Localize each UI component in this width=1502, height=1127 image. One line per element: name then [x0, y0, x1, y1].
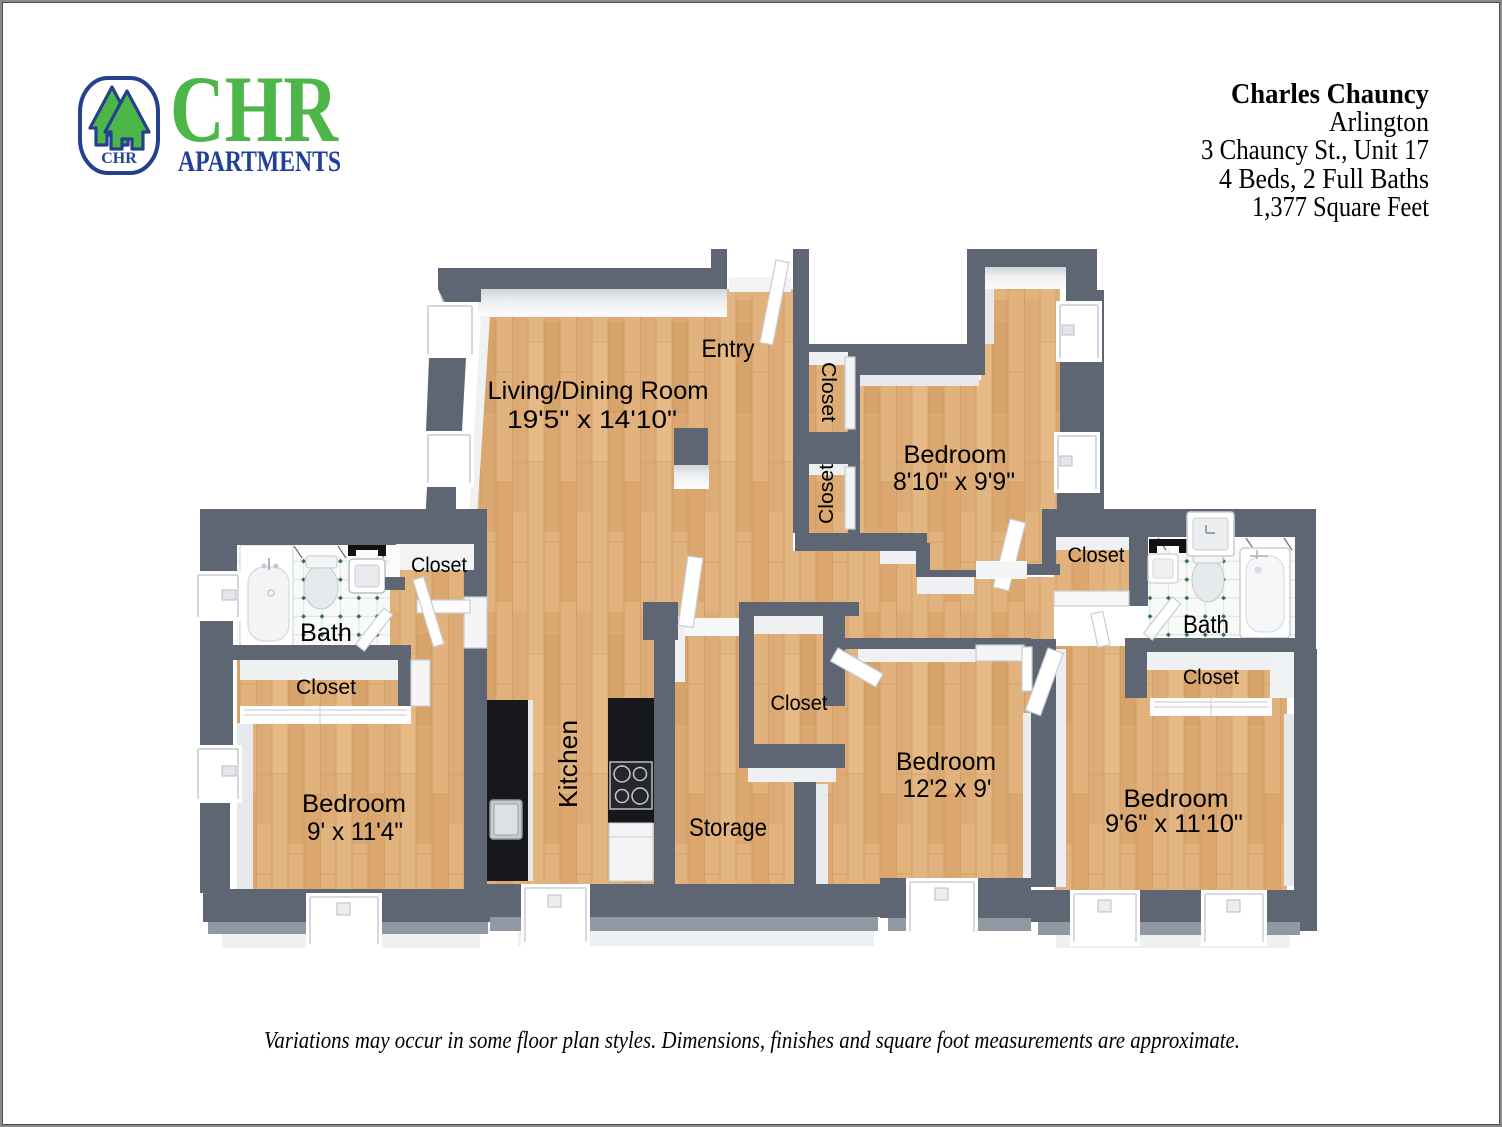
svg-text:Arlington: Arlington — [1329, 107, 1429, 138]
svg-text:Closet: Closet — [1068, 544, 1125, 567]
svg-text:Closet: Closet — [411, 554, 467, 577]
svg-text:Charles Chauncy: Charles Chauncy — [1231, 78, 1429, 110]
svg-text:1,377 Square Feet: 1,377 Square Feet — [1252, 192, 1429, 223]
svg-text:Closet: Closet — [817, 362, 839, 422]
svg-text:Variations may occur in some f: Variations may occur in some floor plan … — [264, 1027, 1240, 1054]
svg-text:Bedroom: Bedroom — [904, 441, 1007, 469]
svg-text:9'6" x 11'10": 9'6" x 11'10" — [1105, 810, 1243, 838]
svg-text:Closet: Closet — [816, 464, 838, 524]
svg-text:Bedroom: Bedroom — [302, 790, 406, 818]
svg-text:9' x 11'4": 9' x 11'4" — [307, 818, 403, 846]
svg-text:CHR: CHR — [101, 150, 137, 167]
svg-text:Living/Dining Room: Living/Dining Room — [488, 377, 709, 405]
svg-text:Closet: Closet — [296, 676, 356, 699]
svg-text:8'10" x 9'9": 8'10" x 9'9" — [893, 468, 1015, 496]
svg-text:APARTMENTS: APARTMENTS — [178, 145, 341, 178]
svg-text:Bedroom: Bedroom — [896, 748, 996, 776]
svg-text:Closet: Closet — [1183, 666, 1239, 689]
svg-text:Bath: Bath — [300, 619, 352, 647]
svg-text:Entry: Entry — [702, 335, 755, 363]
svg-text:4 Beds, 2 Full Baths: 4 Beds, 2 Full Baths — [1219, 164, 1429, 195]
svg-text:Bedroom: Bedroom — [1124, 785, 1229, 813]
svg-text:12'2 x 9': 12'2 x 9' — [903, 775, 992, 803]
svg-text:Storage: Storage — [689, 814, 767, 842]
svg-text:Kitchen: Kitchen — [553, 720, 583, 808]
svg-text:Bath: Bath — [1183, 611, 1229, 639]
svg-text:3 Chauncy St., Unit 17: 3 Chauncy St., Unit 17 — [1201, 135, 1429, 166]
svg-text:Closet: Closet — [771, 692, 828, 715]
svg-text:19'5" x 14'10": 19'5" x 14'10" — [507, 406, 677, 434]
